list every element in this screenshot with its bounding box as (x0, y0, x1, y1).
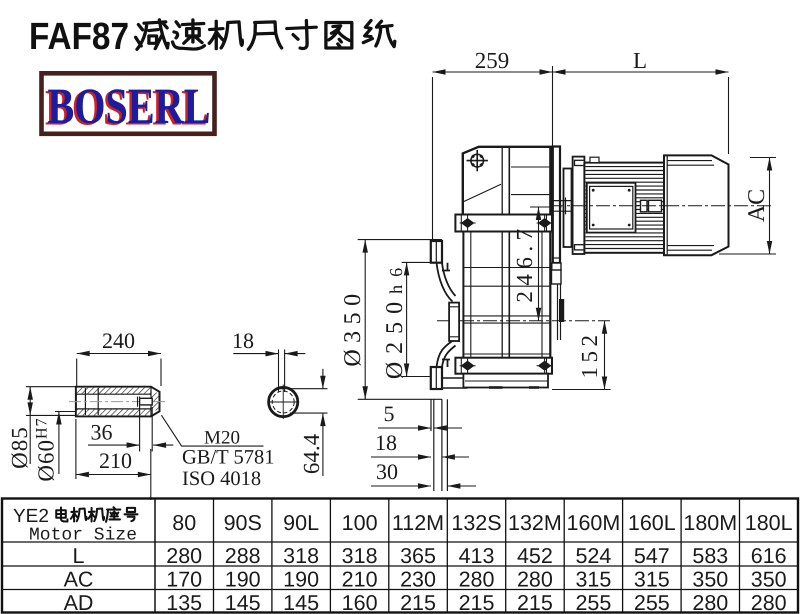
svg-text:365: 365 (400, 544, 436, 568)
svg-text:Ø350: Ø350 (340, 287, 366, 366)
svg-text:318: 318 (342, 544, 378, 568)
svg-text:180L: 180L (745, 511, 793, 535)
svg-text:524: 524 (575, 544, 611, 568)
svg-text:350: 350 (692, 568, 728, 592)
svg-text:64.4: 64.4 (299, 433, 324, 474)
svg-text:350: 350 (751, 568, 787, 592)
svg-text:318: 318 (283, 544, 319, 568)
svg-text:583: 583 (692, 544, 728, 568)
svg-text:315: 315 (634, 568, 670, 592)
svg-text:413: 413 (459, 544, 495, 568)
svg-text:18: 18 (375, 430, 397, 455)
svg-text:280: 280 (459, 568, 495, 592)
svg-text:132M: 132M (508, 511, 562, 535)
svg-text:160M: 160M (567, 511, 621, 535)
svg-text:259: 259 (475, 48, 510, 73)
svg-text:170: 170 (166, 568, 202, 592)
svg-text:135: 135 (166, 591, 202, 614)
svg-text:BOSERL: BOSERL (48, 79, 211, 135)
svg-text:145: 145 (283, 591, 319, 614)
svg-text:230: 230 (400, 568, 436, 592)
svg-text:240: 240 (102, 328, 135, 353)
svg-text:315: 315 (575, 568, 611, 592)
svg-text:288: 288 (225, 544, 261, 568)
svg-text:L: L (73, 544, 85, 568)
svg-text:90L: 90L (283, 511, 319, 535)
svg-text:215: 215 (517, 591, 553, 614)
svg-text:280: 280 (692, 591, 728, 614)
svg-text:190: 190 (283, 568, 319, 592)
svg-text:ISO 4018: ISO 4018 (182, 468, 261, 490)
svg-text:132S: 132S (451, 511, 501, 535)
svg-text:18: 18 (232, 328, 254, 353)
svg-text:112M: 112M (392, 511, 444, 535)
svg-text:AD: AD (64, 591, 94, 614)
svg-text:30: 30 (376, 459, 398, 484)
svg-text:GB/T 5781: GB/T 5781 (182, 447, 274, 469)
svg-text:80: 80 (172, 511, 196, 535)
svg-text:100: 100 (342, 511, 378, 535)
svg-text:255: 255 (634, 591, 670, 614)
svg-text:210: 210 (342, 568, 378, 592)
svg-text:5: 5 (384, 401, 395, 426)
svg-text:280: 280 (751, 591, 787, 614)
svg-text:AC: AC (64, 568, 94, 592)
svg-text:90S: 90S (224, 511, 262, 535)
svg-text:Motor Size: Motor Size (29, 526, 137, 546)
svg-text:280: 280 (517, 568, 553, 592)
svg-text:190: 190 (225, 568, 261, 592)
svg-text:Ø250h6: Ø250h6 (382, 260, 408, 379)
svg-text:YE2: YE2 (13, 506, 49, 527)
svg-text:215: 215 (400, 591, 436, 614)
svg-text:215: 215 (459, 591, 495, 614)
svg-text:FAF87: FAF87 (29, 16, 129, 58)
svg-text:280: 280 (166, 544, 202, 568)
svg-text:246.7: 246.7 (512, 223, 537, 302)
svg-text:616: 616 (751, 544, 787, 568)
svg-text:160L: 160L (628, 511, 676, 535)
svg-text:160: 160 (342, 591, 378, 614)
svg-text:210: 210 (99, 448, 132, 473)
svg-text:145: 145 (225, 591, 261, 614)
svg-text:547: 547 (634, 544, 670, 568)
svg-text:255: 255 (575, 591, 611, 614)
svg-text:L: L (633, 48, 647, 73)
svg-text:152: 152 (577, 331, 602, 379)
svg-text:180M: 180M (683, 511, 737, 535)
svg-text:452: 452 (517, 544, 553, 568)
svg-text:Ø85: Ø85 (7, 426, 32, 469)
svg-text:36: 36 (91, 420, 113, 445)
svg-text:M20: M20 (204, 428, 240, 449)
svg-text:Ø60H7: Ø60H7 (34, 417, 59, 481)
